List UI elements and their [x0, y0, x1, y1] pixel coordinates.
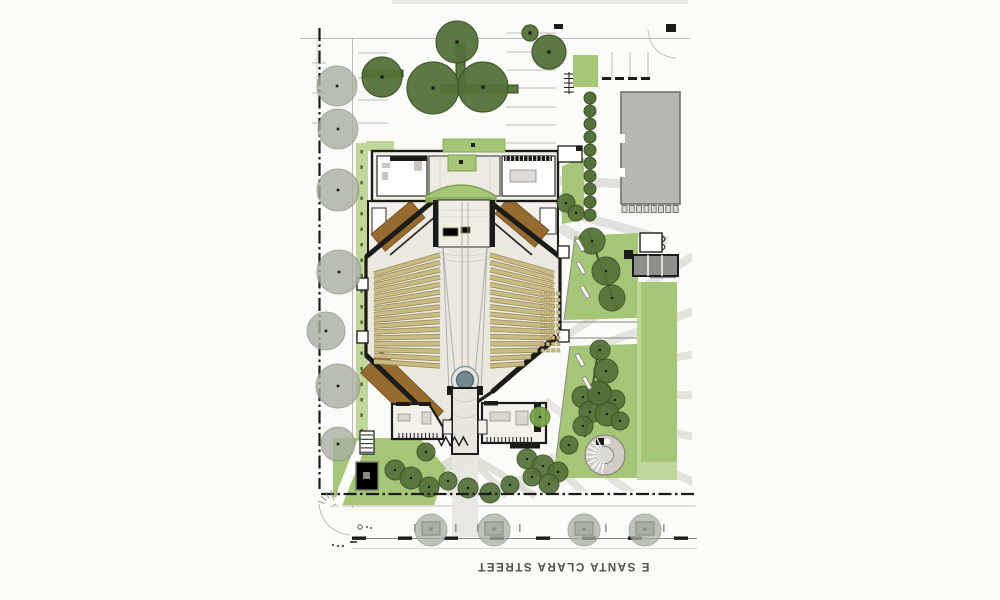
choir-seat	[551, 317, 554, 320]
shrub-dot	[360, 243, 362, 246]
tree-trunk-dot	[394, 469, 396, 471]
choir-seat	[541, 349, 544, 352]
choir-seat	[551, 292, 554, 295]
hedge-shrub	[584, 183, 596, 195]
column	[651, 206, 656, 213]
tree-trunk-dot	[531, 476, 533, 478]
tree-trunk-dot	[582, 396, 584, 398]
choir-seat	[551, 305, 554, 308]
tree-trunk-dot	[447, 480, 449, 482]
choir-seat	[557, 292, 560, 295]
shrub-dot	[360, 367, 362, 370]
pew-row	[490, 350, 537, 351]
tree-trunk-dot	[557, 471, 559, 473]
choir-seat	[557, 342, 560, 345]
shrub-dot	[360, 321, 362, 324]
street-name-label: E SANTA CLARA STREET	[477, 560, 650, 572]
tree-trunk-dot	[606, 413, 608, 415]
tree-trunk-dot	[539, 416, 541, 418]
hedge-shrub	[584, 144, 596, 156]
tree-trunk-dot	[425, 451, 427, 453]
tree-trunk-dot	[589, 411, 591, 413]
tree-trunk-dot	[455, 40, 458, 43]
tree-trunk-dot	[337, 385, 340, 388]
pew-row	[374, 350, 440, 351]
choir-seat	[546, 336, 549, 339]
hedge-shrub	[584, 196, 596, 208]
choir-seat	[541, 305, 544, 308]
centerline-dash	[444, 537, 458, 540]
choir-seat	[557, 324, 560, 327]
side-door-bay	[357, 331, 368, 343]
tree-trunk-dot	[410, 477, 412, 479]
column	[637, 206, 642, 213]
tick	[519, 524, 521, 532]
shrub-dot	[360, 259, 362, 262]
choir-seat	[541, 330, 544, 333]
southwest-stair	[360, 431, 374, 454]
choir-seat	[546, 330, 549, 333]
shrub-dot	[360, 166, 362, 169]
tree-trunk-dot	[336, 85, 339, 88]
column	[629, 206, 634, 213]
tree-trunk-dot	[599, 349, 601, 351]
choir-seat	[546, 292, 549, 295]
choir-seat	[557, 330, 560, 333]
shrub-dot	[360, 212, 362, 215]
scanned-site-plan-page: E SANTA CLARA STREET	[0, 0, 1000, 600]
north-planter	[573, 55, 598, 87]
tree-trunk-dot	[431, 86, 434, 89]
tree-trunk-dot	[467, 487, 469, 489]
choir-seat	[551, 349, 554, 352]
tick	[663, 524, 665, 532]
tree-trunk-dot	[605, 370, 607, 372]
choir-seat	[546, 298, 549, 301]
centerline-dash	[674, 537, 688, 540]
tree-trunk-dot	[337, 189, 340, 192]
shrub-dot	[360, 305, 362, 308]
choir-seat	[546, 342, 549, 345]
choir-seat	[546, 305, 549, 308]
tree-trunk-dot	[380, 75, 383, 78]
scan-edge-artifact	[392, 0, 688, 4]
choir-seat	[546, 349, 549, 352]
shrub-dot	[360, 181, 362, 184]
choir-seat	[557, 317, 560, 320]
tick	[455, 524, 457, 532]
tree-trunk-dot	[575, 212, 577, 214]
site-plan-drawing: E SANTA CLARA STREET	[0, 0, 1000, 600]
choir-seat	[551, 311, 554, 314]
pew-row	[490, 364, 524, 366]
choir-seat	[551, 330, 554, 333]
column	[644, 206, 649, 213]
northeast-annex	[558, 146, 582, 162]
tree-trunk-dot	[548, 483, 550, 485]
shrub-dot	[360, 383, 362, 386]
choir-seat	[557, 349, 560, 352]
choir-seat	[541, 336, 544, 339]
choir-seat	[551, 324, 554, 327]
tree-trunk-dot	[542, 465, 544, 467]
choir-seat	[541, 292, 544, 295]
kiosk	[624, 250, 633, 259]
tree-trunk-dot	[591, 240, 593, 242]
east-lawn	[641, 282, 677, 480]
centerline-dash	[352, 537, 366, 540]
choir-seat	[551, 336, 554, 339]
tree-trunk-dot	[582, 425, 584, 427]
tree-trunk-dot	[526, 458, 528, 460]
centerline-dash	[536, 537, 550, 540]
hedge-shrub	[584, 92, 596, 104]
column	[666, 206, 671, 213]
tree-trunk-dot	[598, 392, 600, 394]
pew-row	[374, 336, 440, 338]
choir-seat	[551, 298, 554, 301]
tick	[605, 524, 607, 532]
centerline-dash	[398, 537, 412, 540]
choir-seat	[557, 298, 560, 301]
choir-seat	[557, 311, 560, 314]
column	[659, 206, 664, 213]
tree-trunk-dot	[619, 420, 621, 422]
shrub-dot	[360, 228, 362, 231]
utility-box	[666, 24, 676, 32]
tree-trunk-dot	[528, 31, 531, 34]
choir-seat	[557, 305, 560, 308]
side-door-bay	[558, 246, 569, 258]
pew-row	[490, 357, 531, 359]
hedge-shrub	[584, 170, 596, 182]
tree-trunk-dot	[325, 330, 328, 333]
equipment-pad	[356, 462, 378, 490]
choir-seat	[546, 317, 549, 320]
choir-seat	[541, 298, 544, 301]
tree-trunk-dot	[337, 128, 340, 131]
column	[622, 206, 627, 213]
tree-trunk-dot	[614, 399, 616, 401]
hedge-shrub	[584, 209, 596, 221]
altar	[443, 228, 458, 236]
choir-seat	[546, 311, 549, 314]
tree-trunk-dot	[428, 486, 430, 488]
hedge-shrub	[584, 118, 596, 130]
tree-trunk-dot	[568, 444, 570, 446]
tree-canopy	[478, 514, 510, 546]
shrub-dot	[360, 398, 362, 401]
tree-canopy	[568, 514, 600, 546]
tree-trunk-dot	[481, 85, 484, 88]
existing-building	[620, 92, 680, 204]
tree-trunk-dot	[565, 202, 567, 204]
choir-seat	[541, 311, 544, 314]
hedge-shrub	[584, 157, 596, 169]
choir-seat	[546, 324, 549, 327]
shrub-dot	[360, 352, 362, 355]
tree-canopy	[415, 514, 447, 546]
tree-canopy	[629, 514, 661, 546]
tree-trunk-dot	[547, 50, 550, 53]
column	[673, 206, 678, 213]
fountain-amphitheater	[585, 435, 625, 475]
shrub-dot	[360, 414, 362, 417]
tree-trunk-dot	[337, 443, 340, 446]
tree-trunk-dot	[605, 270, 607, 272]
choir-seat	[541, 317, 544, 320]
choir-seat	[557, 336, 560, 339]
choir-seat	[541, 342, 544, 345]
tree-trunk-dot	[611, 297, 613, 299]
tree-trunk-dot	[338, 271, 341, 274]
tree-trunk-dot	[509, 484, 511, 486]
hedge-shrub	[584, 105, 596, 117]
choir-seat	[541, 324, 544, 327]
shrub-dot	[360, 197, 362, 200]
choir-seat	[551, 342, 554, 345]
hedge-shrub	[584, 131, 596, 143]
shrub-dot	[360, 150, 362, 153]
